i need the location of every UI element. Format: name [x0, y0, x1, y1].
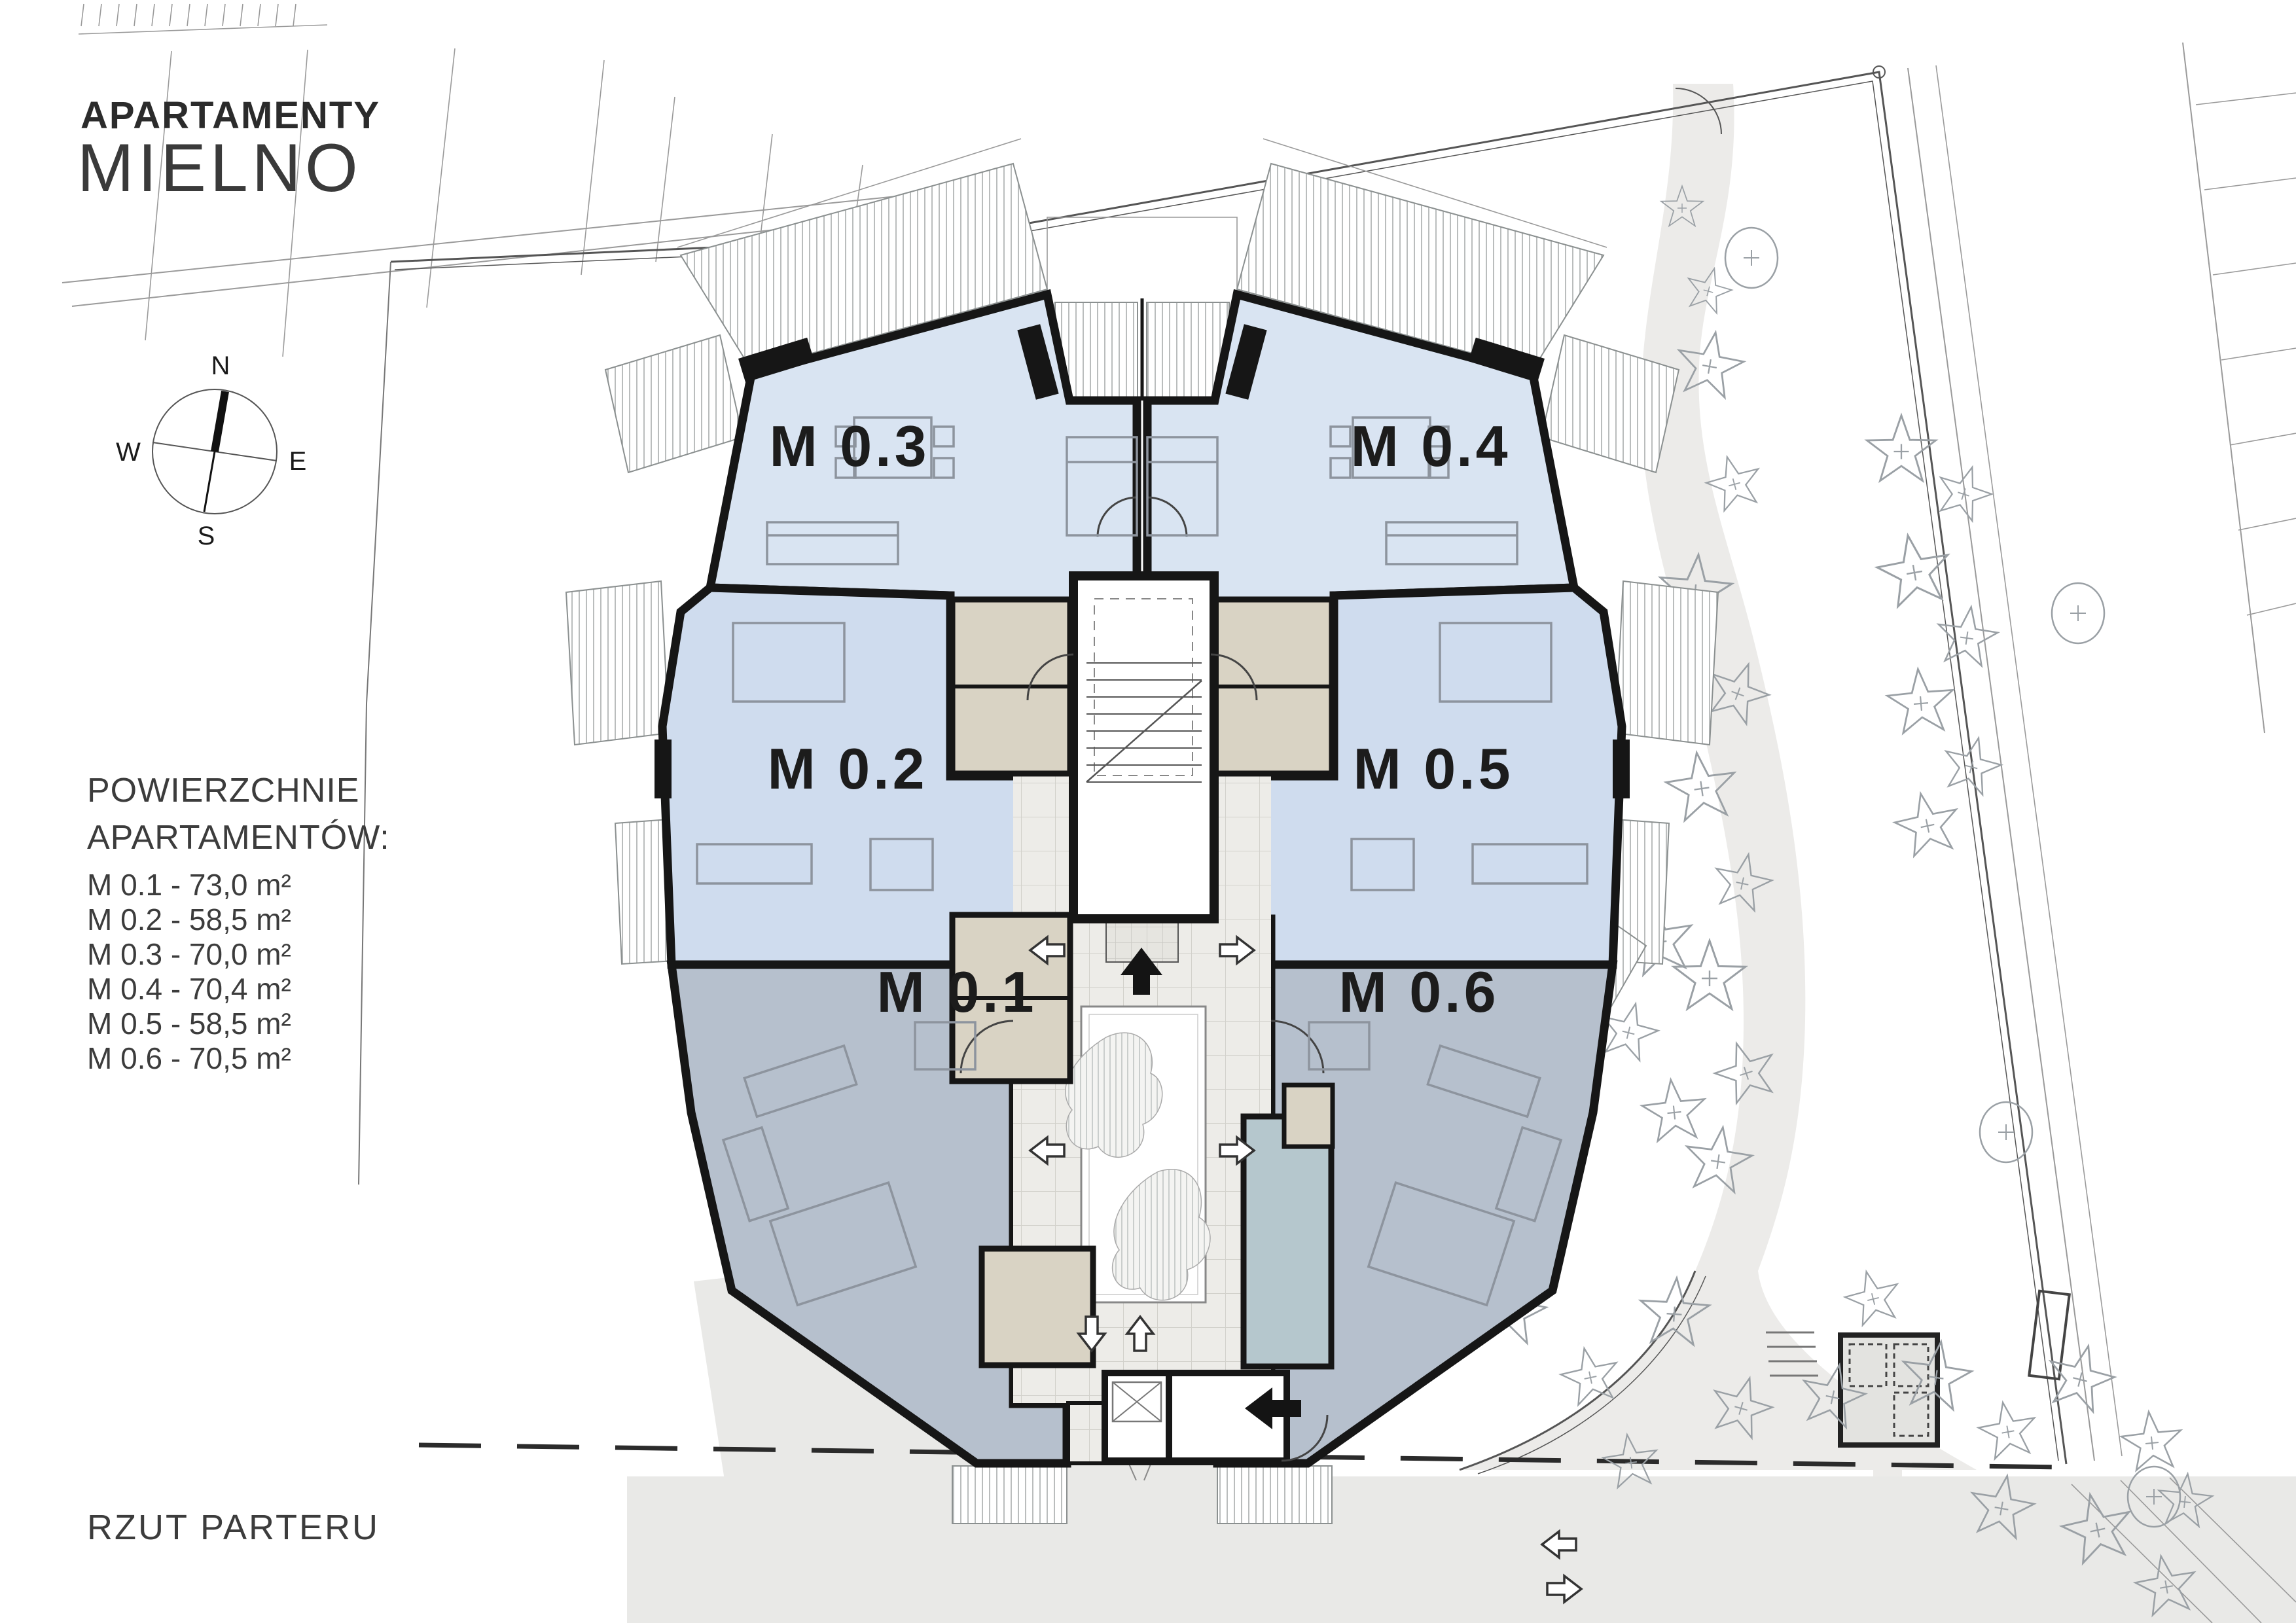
area-item-m04: M 0.4 - 70,4 m²	[87, 972, 291, 1006]
area-item-m05: M 0.5 - 58,5 m²	[87, 1007, 291, 1041]
area-item-m01: M 0.1 - 73,0 m²	[87, 868, 291, 902]
plan-label-m01: M 0.1	[876, 959, 1037, 1024]
tree-star-icon	[1556, 1342, 1623, 1407]
tree-circle-icon	[1725, 228, 1778, 288]
area-item-m02: M 0.2 - 58,5 m²	[87, 902, 291, 936]
tree-star-icon	[1640, 1077, 1708, 1143]
elevator-and-lobby	[1105, 1373, 1301, 1461]
compass-south-label: S	[198, 522, 215, 550]
elevator	[1105, 1373, 1169, 1461]
tree-star-icon	[1890, 787, 1964, 859]
floor-plan-page: M 0.1 M 0.2 M 0.3 M 0.4 M 0.5 M 0.6 APAR…	[0, 0, 2296, 1623]
tree-star-icon	[1975, 1398, 2040, 1461]
tree-circle-icon	[2052, 583, 2104, 643]
plan-caption: RZUT PARTERU	[87, 1508, 380, 1547]
tree-circle-icon	[1980, 1102, 2032, 1162]
tree-star-icon	[1938, 731, 2006, 797]
tree-star-icon	[1674, 940, 1745, 1008]
plan-label-m06: M 0.6	[1338, 959, 1499, 1024]
tree-star-icon	[2041, 1338, 2120, 1415]
plan-label-m05: M 0.5	[1353, 736, 1513, 801]
project-title-line2: MIELNO	[77, 130, 362, 206]
plan-label-m04: M 0.4	[1350, 414, 1511, 478]
plan-label-m02: M 0.2	[767, 736, 927, 801]
road-bottom	[627, 1476, 2296, 1623]
title-block: APARTAMENTY MIELNO	[77, 94, 380, 206]
tree-star-icon	[1885, 666, 1956, 734]
area-item-m06: M 0.6 - 70,5 m²	[87, 1041, 291, 1075]
stairwell	[1073, 576, 1214, 919]
areas-heading-line1: POWIERZCHNIE	[87, 772, 359, 810]
compass-rose: N S W E	[116, 351, 306, 550]
plan-label-m03: M 0.3	[769, 414, 929, 478]
tree-star-icon	[1931, 459, 1998, 524]
areas-legend: POWIERZCHNIE APARTAMENTÓW: M 0.1 - 73,0 …	[87, 772, 390, 1075]
compass-north-label: N	[211, 351, 230, 380]
compass-needle-north	[215, 391, 225, 452]
tree-star-icon	[2119, 1408, 2185, 1471]
neighbor-plot-lines-right	[1908, 43, 2296, 1461]
site-plan-svg: M 0.1 M 0.2 M 0.3 M 0.4 M 0.5 M 0.6 APAR…	[0, 0, 2296, 1623]
compass-west-label: W	[116, 438, 141, 467]
compass-east-label: E	[289, 447, 307, 476]
laundry-room	[1244, 1116, 1331, 1366]
area-item-m03: M 0.3 - 70,0 m²	[87, 937, 291, 971]
areas-heading-line2: APARTAMENTÓW:	[87, 819, 390, 857]
tree-star-icon	[1840, 1265, 1905, 1328]
